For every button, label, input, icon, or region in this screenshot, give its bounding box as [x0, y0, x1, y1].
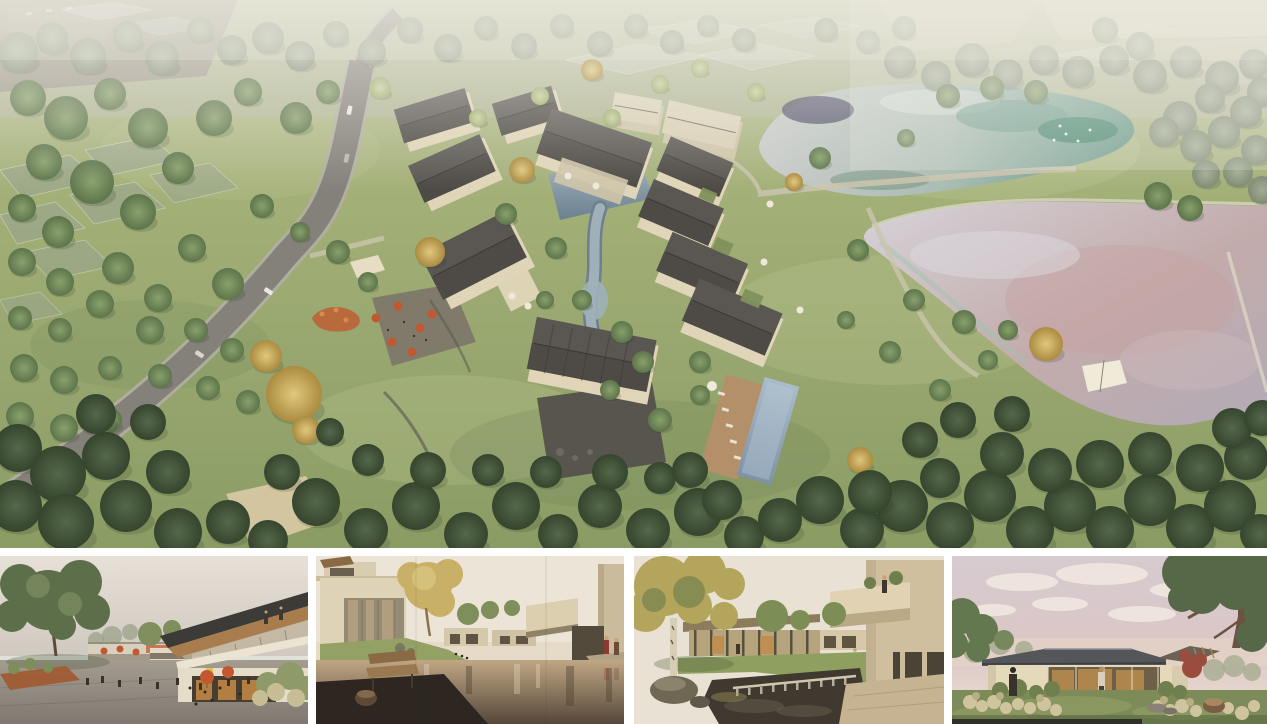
thumbnail-garden-waterfall: [634, 556, 944, 724]
thumbnail-plaza-cafe: [0, 556, 308, 724]
thumbnail-garden-waterfall-svg: [634, 556, 944, 724]
thumbnail-pavilion-dusk-svg: [952, 556, 1267, 724]
render-board: [0, 0, 1267, 724]
hero-aerial-render: [0, 0, 1267, 548]
hero-aerial-svg: [0, 0, 1267, 548]
thumbnail-pavilion-dusk: [952, 556, 1267, 724]
thumbnail-courtyard-pond-svg: [316, 556, 624, 724]
thumbnail-plaza-cafe-svg: [0, 556, 308, 724]
thumbnail-courtyard-pond: [316, 556, 624, 724]
